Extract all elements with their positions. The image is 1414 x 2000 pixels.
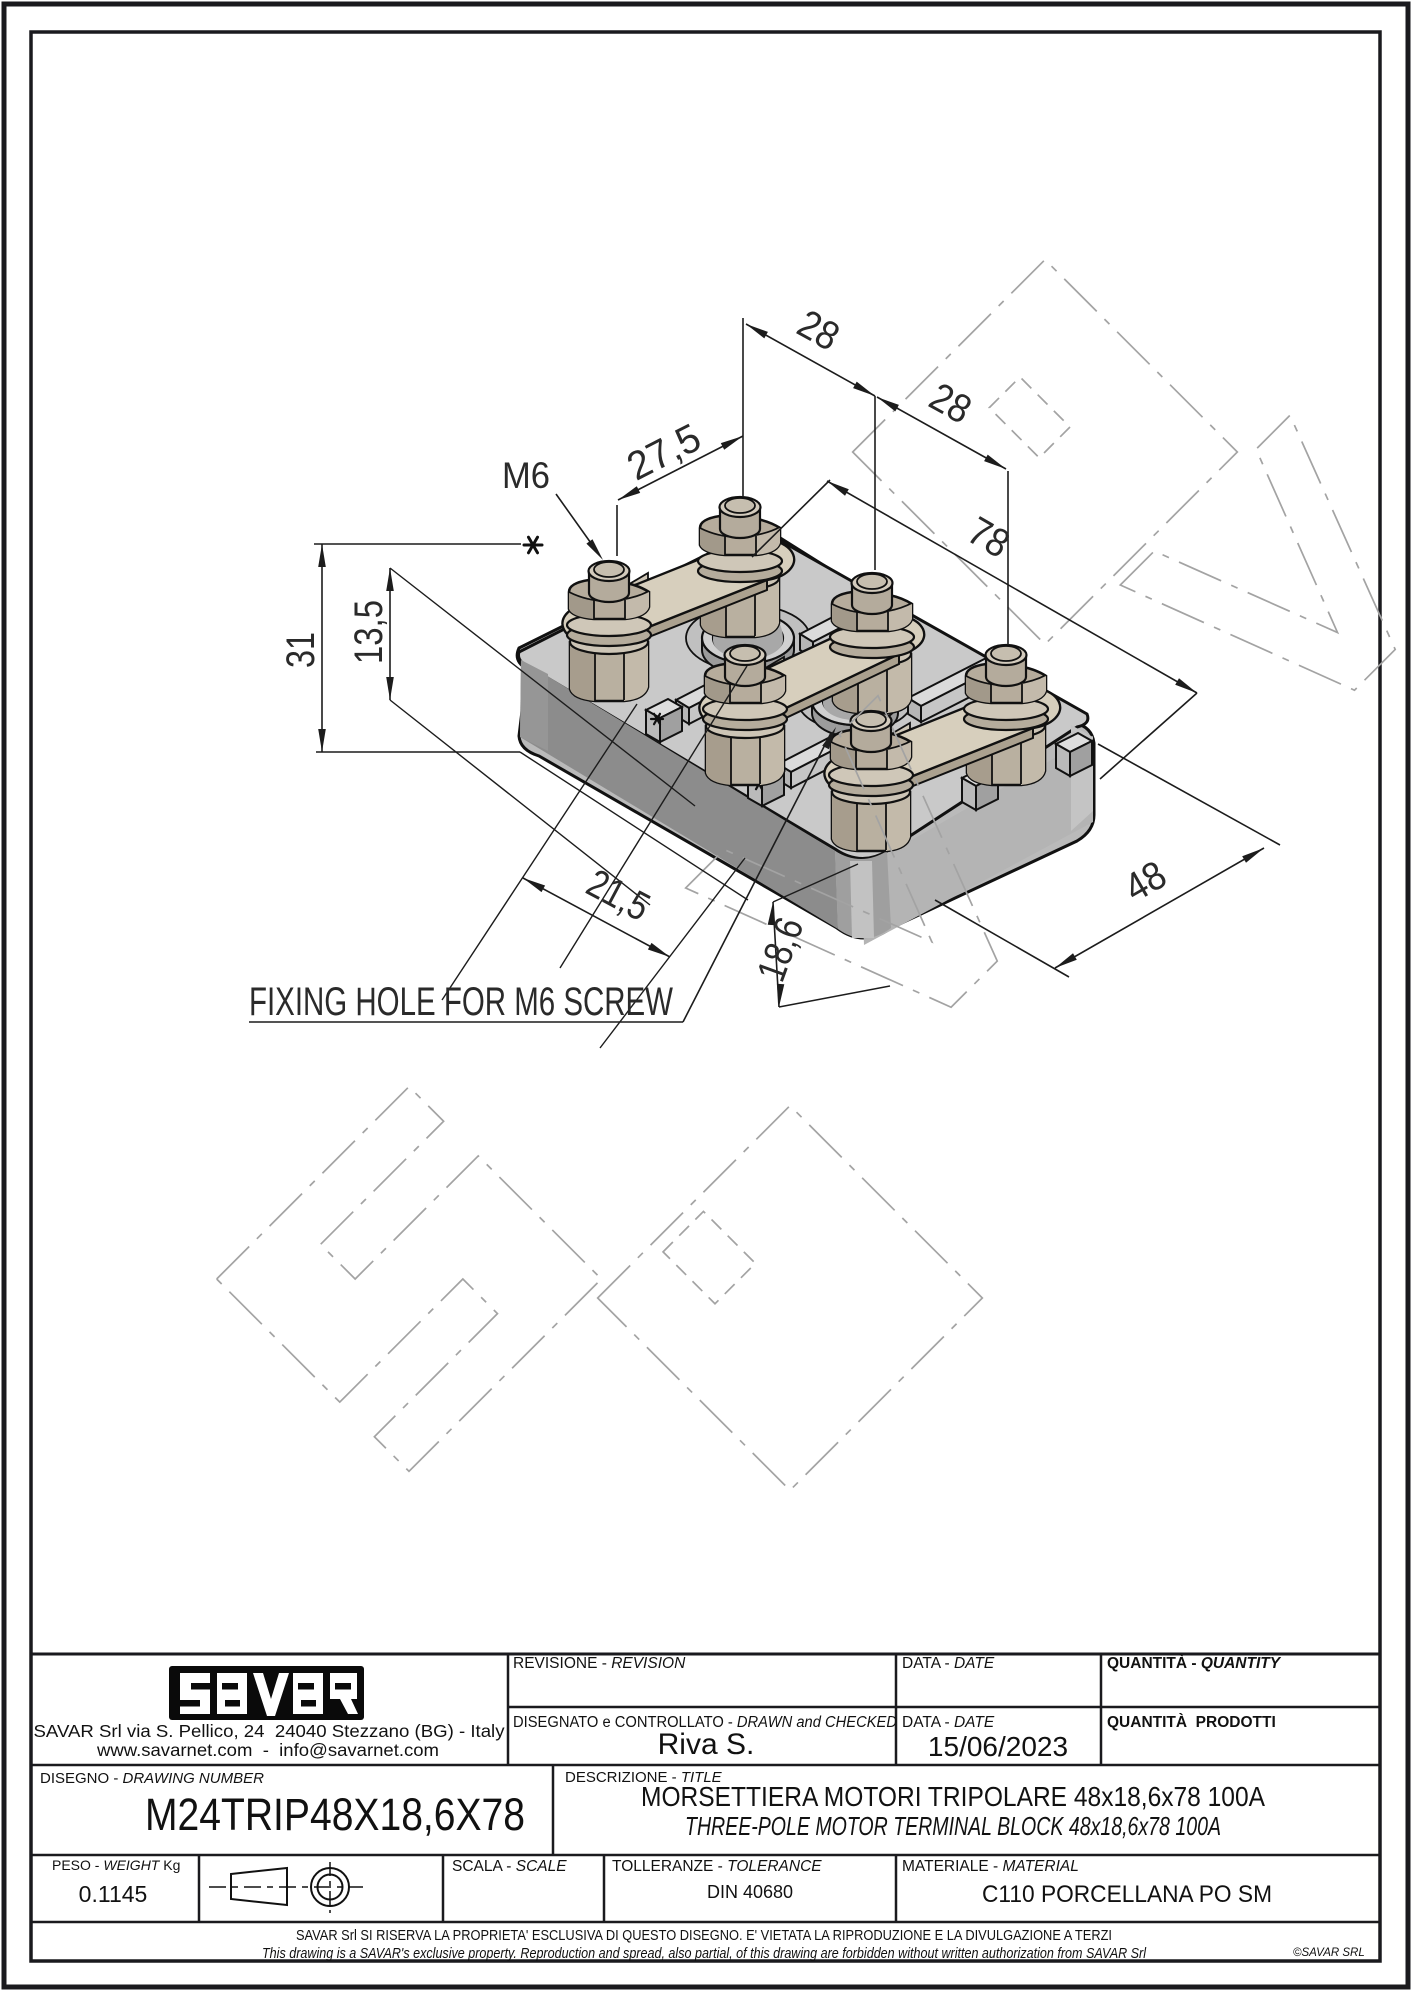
svg-text:13,5: 13,5 [347, 600, 391, 664]
svg-text:DIN 40680: DIN 40680 [707, 1882, 793, 1902]
svg-text:REVISIONE - REVISION: REVISIONE - REVISION [513, 1655, 686, 1672]
svg-text:This drawing is a SAVAR's excl: This drawing is a SAVAR's exclusive prop… [262, 1945, 1147, 1962]
svg-text:0.1145: 0.1145 [79, 1881, 148, 1907]
svg-text:DATA - DATE: DATA - DATE [902, 1714, 995, 1731]
svg-text:MORSETTIERA MOTORI TRIPOLARE 4: MORSETTIERA MOTORI TRIPOLARE 48x18,6x78 … [641, 1781, 1266, 1812]
svg-text:MATERIALE - MATERIAL: MATERIALE - MATERIAL [902, 1858, 1079, 1875]
svg-text:SAVAR Srl SI RISERVA LA PROPRI: SAVAR Srl SI RISERVA LA PROPRIETA' ESCLU… [296, 1927, 1112, 1944]
svg-text:15/06/2023: 15/06/2023 [928, 1731, 1068, 1762]
svg-text:www.savarnet.com - info@sava: www.savarnet.com - info@savarnet.com [96, 1740, 439, 1760]
svg-text:PESO - WEIGHT Kg: PESO - WEIGHT Kg [52, 1857, 180, 1873]
svg-text:©SAVAR SRL: ©SAVAR SRL [1293, 1947, 1365, 1959]
svg-text:THREE-POLE MOTOR TERMINAL BLOC: THREE-POLE MOTOR TERMINAL BLOCK 48x18,6x… [685, 1811, 1221, 1841]
svg-text:SCALA - SCALE: SCALA - SCALE [452, 1858, 567, 1875]
svg-text:TOLLERANZE - TOLERANCE: TOLLERANZE - TOLERANCE [612, 1858, 822, 1875]
svg-text:QUANTITÀ PRODOTTI: QUANTITÀ PRODOTTI [1107, 1714, 1276, 1731]
svg-text:DATA - DATE: DATA - DATE [902, 1655, 995, 1672]
svg-text:SAVAR Srl via S. Pellico, 24: SAVAR Srl via S. Pellico, 24 24040 Stezz… [34, 1721, 505, 1741]
svg-text:31: 31 [279, 632, 323, 668]
svg-text:FIXING HOLE FOR M6 SCREW: FIXING HOLE FOR M6 SCREW [249, 980, 673, 1024]
svg-text:M6: M6 [502, 455, 550, 496]
svg-text:M24TRIP48X18,6X78: M24TRIP48X18,6X78 [145, 1789, 525, 1840]
svg-text:QUANTITÀ - QUANTITY: QUANTITÀ - QUANTITY [1107, 1655, 1282, 1672]
svg-text:Riva S.: Riva S. [658, 1728, 755, 1761]
svg-text:DISEGNO - DRAWING NUMBER: DISEGNO - DRAWING NUMBER [40, 1770, 264, 1787]
svg-text:C110 PORCELLANA PO SM: C110 PORCELLANA PO SM [982, 1881, 1272, 1908]
